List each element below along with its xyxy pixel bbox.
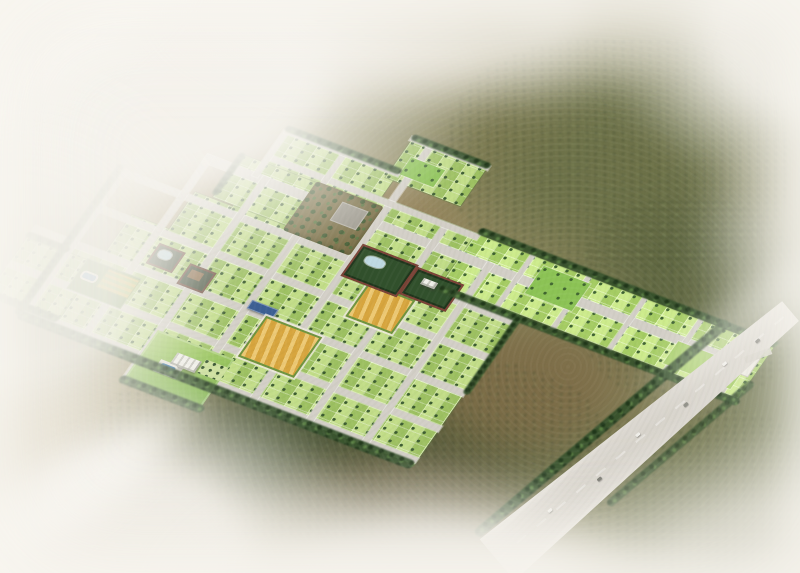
fog-vignette	[0, 0, 800, 573]
aerial-render-scene	[0, 0, 800, 573]
